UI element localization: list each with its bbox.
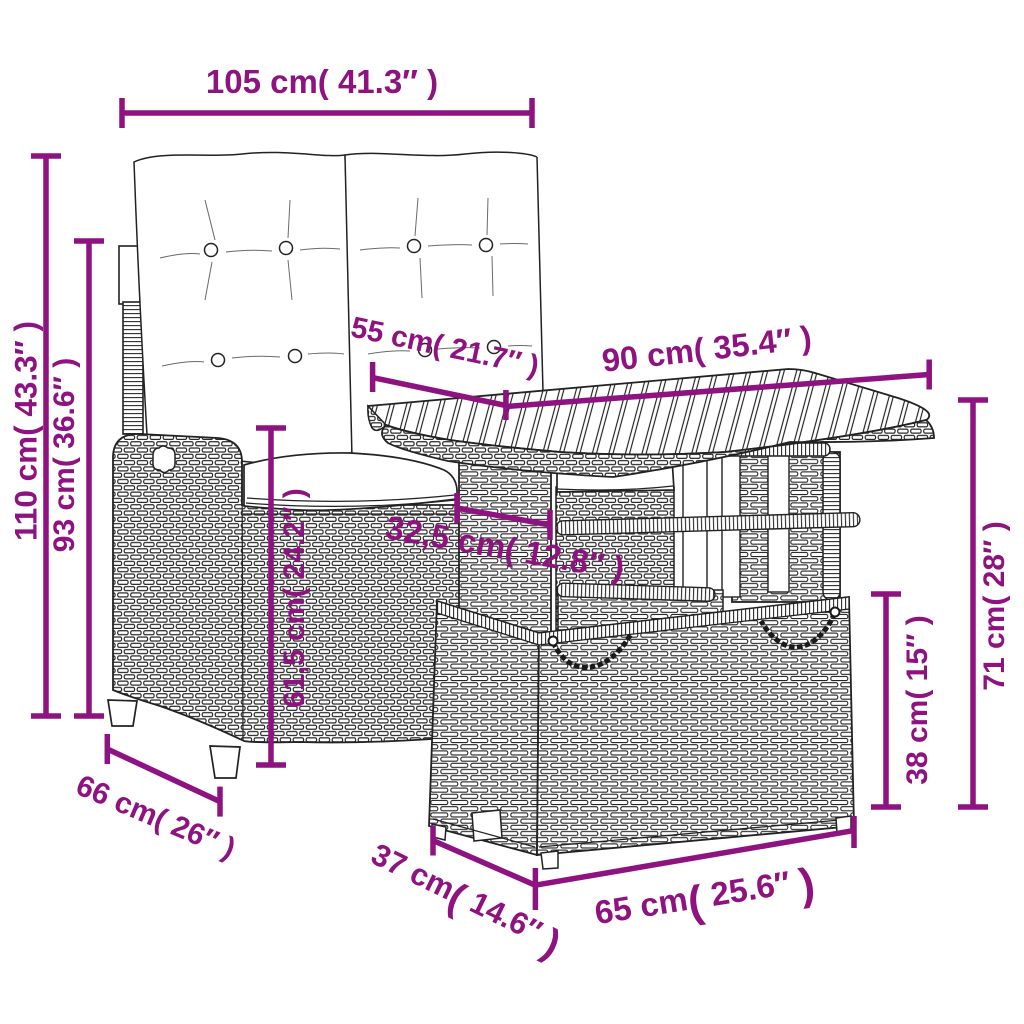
svg-text:71 cm( 28″ ): 71 cm( 28″ ) xyxy=(978,521,1011,690)
svg-text:61,5 cm( 24.2″ ): 61,5 cm( 24.2″ ) xyxy=(278,488,311,708)
svg-text:38 cm( 15″ ): 38 cm( 15″ ) xyxy=(901,615,934,784)
svg-text:110 cm( 43.3″ ): 110 cm( 43.3″ ) xyxy=(8,321,44,541)
svg-text:93 cm( 36.6″ ): 93 cm( 36.6″ ) xyxy=(48,358,81,552)
svg-text:105 cm( 41.3″ ): 105 cm( 41.3″ ) xyxy=(206,63,438,100)
